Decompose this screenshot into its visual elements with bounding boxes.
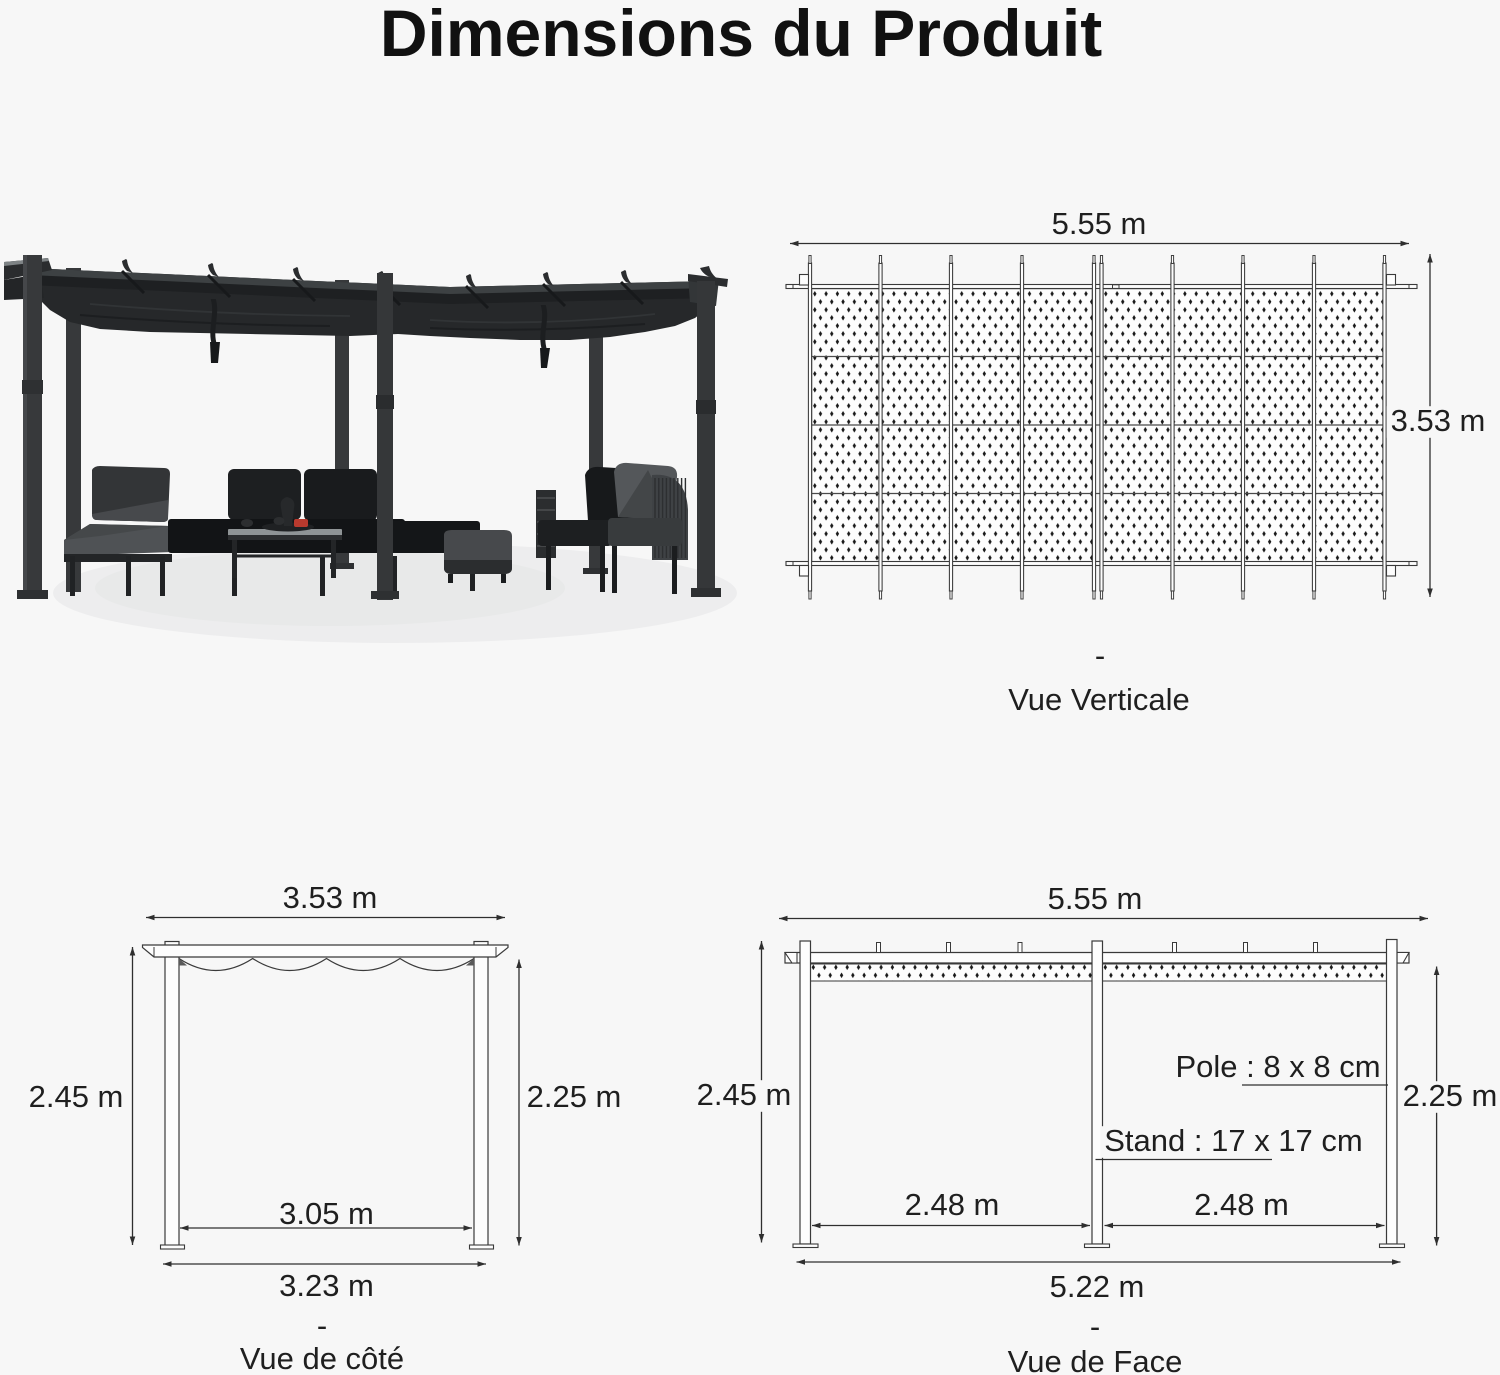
svg-text:2.45 m: 2.45 m [29, 1079, 124, 1114]
svg-text:3.53 m: 3.53 m [283, 880, 378, 915]
svg-text:5.55 m: 5.55 m [1052, 206, 1147, 241]
svg-text:3.05 m: 3.05 m [279, 1196, 374, 1231]
svg-text:-: - [1095, 638, 1105, 673]
svg-text:Vue Verticale: Vue Verticale [1008, 682, 1190, 717]
svg-text:5.55 m: 5.55 m [1048, 881, 1143, 916]
svg-text:-: - [317, 1308, 327, 1343]
svg-text:2.25 m: 2.25 m [1403, 1078, 1498, 1113]
svg-text:2.25 m: 2.25 m [527, 1079, 622, 1114]
svg-text:Dimensions du Produit: Dimensions du Produit [380, 0, 1102, 70]
svg-text:Pole : 8 x 8 cm: Pole : 8 x 8 cm [1175, 1049, 1380, 1084]
svg-text:Stand : 17 x 17 cm: Stand : 17 x 17 cm [1104, 1123, 1362, 1158]
svg-text:3.23 m: 3.23 m [279, 1268, 374, 1303]
svg-text:Vue de Face: Vue de Face [1008, 1344, 1183, 1375]
svg-text:2.48 m: 2.48 m [905, 1187, 1000, 1222]
svg-text:-: - [1090, 1309, 1100, 1344]
svg-text:Vue de côté: Vue de côté [240, 1341, 404, 1375]
svg-text:2.48 m: 2.48 m [1194, 1187, 1289, 1222]
svg-text:2.45 m: 2.45 m [697, 1077, 792, 1112]
svg-text:5.22 m: 5.22 m [1050, 1269, 1145, 1304]
svg-text:3.53 m: 3.53 m [1391, 403, 1486, 438]
